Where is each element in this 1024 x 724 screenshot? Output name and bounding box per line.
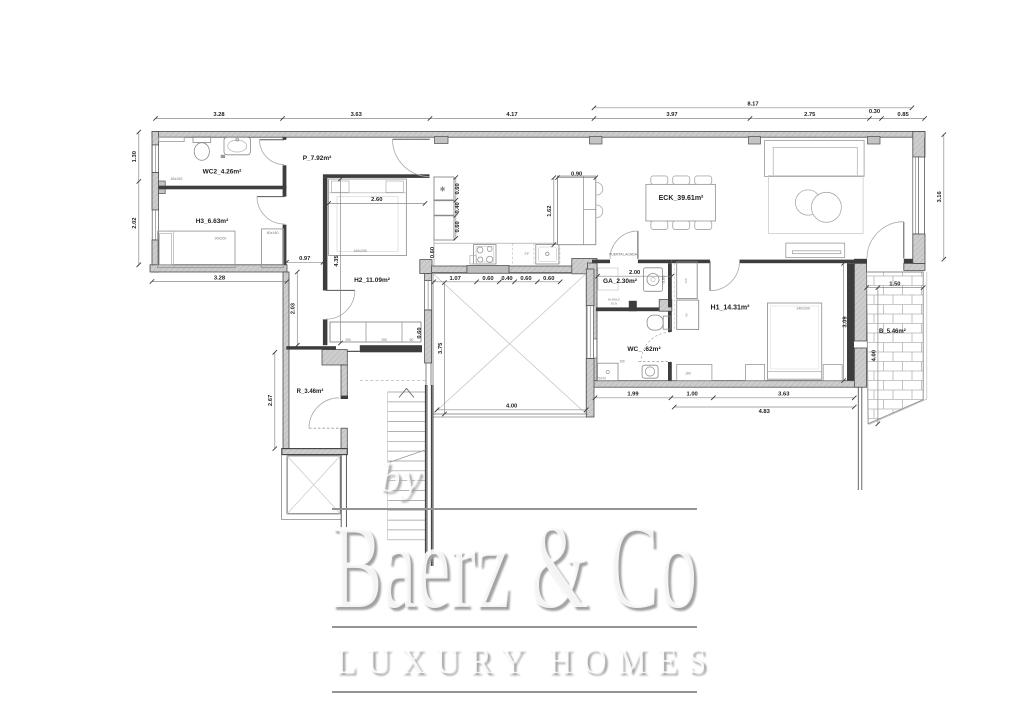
svg-text:R_3.46m²: R_3.46m²: [297, 388, 324, 395]
svg-text:65x150: 65x150: [171, 177, 183, 181]
svg-text:80: 80: [685, 313, 689, 317]
svg-text:90x200: 90x200: [215, 237, 227, 241]
svg-text:H1_14.31m²: H1_14.31m²: [711, 305, 751, 312]
svg-text:WC2_4.26m²: WC2_4.26m²: [203, 169, 242, 176]
svg-text:4.35: 4.35: [334, 255, 340, 267]
svg-text:0.60: 0.60: [417, 327, 423, 338]
svg-text:3.28: 3.28: [213, 112, 225, 118]
svg-text:0.60: 0.60: [455, 183, 461, 194]
svg-text:H3_6.63m²: H3_6.63m²: [196, 218, 229, 225]
svg-text:GA_2.30m²: GA_2.30m²: [603, 278, 638, 285]
svg-text:P_7.92m²: P_7.92m²: [303, 155, 332, 162]
svg-text:1.50: 1.50: [889, 281, 900, 287]
svg-text:0.60: 0.60: [520, 276, 531, 282]
svg-text:0.40: 0.40: [455, 202, 461, 213]
svg-text:3.28: 3.28: [214, 275, 226, 281]
svg-text:140x200: 140x200: [353, 249, 367, 253]
svg-text:1.99: 1.99: [627, 392, 639, 398]
svg-text:0.30: 0.30: [869, 109, 880, 115]
svg-text:2.00: 2.00: [629, 270, 640, 276]
svg-text:70x70: 70x70: [597, 376, 606, 380]
svg-text:2.67: 2.67: [268, 395, 274, 406]
svg-text:3.16: 3.16: [937, 190, 943, 202]
svg-text:PUERTA LACADA: PUERTA LACADA: [609, 253, 637, 257]
svg-text:1.30: 1.30: [132, 151, 138, 162]
svg-text:3.63: 3.63: [778, 392, 790, 398]
svg-text:1.00: 1.00: [687, 392, 698, 398]
svg-text:0.60: 0.60: [543, 276, 554, 282]
svg-text:1.62: 1.62: [547, 206, 553, 217]
svg-text:H2_11.09m²: H2_11.09m²: [354, 277, 391, 284]
svg-text:8.17: 8.17: [747, 102, 758, 108]
svg-text:0.60: 0.60: [430, 247, 436, 258]
svg-text:0.97: 0.97: [299, 256, 310, 262]
svg-text:3.75: 3.75: [438, 342, 444, 354]
svg-text:50: 50: [410, 338, 414, 342]
svg-text:0.60: 0.60: [482, 276, 493, 282]
svg-text:4.00: 4.00: [871, 350, 877, 361]
svg-text:0.90: 0.90: [571, 171, 582, 177]
svg-text:60x160: 60x160: [267, 231, 279, 235]
svg-text:4.00: 4.00: [506, 404, 517, 410]
svg-text:1.07: 1.07: [450, 276, 461, 282]
svg-text:B_5.46m²: B_5.46m²: [879, 328, 906, 335]
svg-text:0.60: 0.60: [455, 221, 461, 232]
svg-text:0.40: 0.40: [501, 276, 512, 282]
svg-text:2.03: 2.03: [291, 302, 297, 314]
svg-text:ECK_39.61m²: ECK_39.61m²: [659, 195, 704, 202]
svg-text:0.60: 0.60: [661, 275, 666, 284]
svg-text:190: 190: [381, 338, 387, 342]
svg-text:FF: FF: [525, 251, 530, 256]
svg-text:4.17: 4.17: [506, 112, 517, 118]
svg-text:190: 190: [619, 360, 625, 364]
svg-text:0.85: 0.85: [897, 112, 909, 118]
svg-text:2.75: 2.75: [804, 112, 816, 118]
svg-text:WC_ .62m²: WC_ .62m²: [627, 346, 661, 353]
svg-text:3.09: 3.09: [843, 316, 849, 328]
svg-text:✱: ✱: [440, 186, 446, 194]
svg-text:3.97: 3.97: [666, 112, 677, 118]
svg-text:2.60: 2.60: [371, 197, 382, 203]
svg-text:160: 160: [684, 278, 688, 283]
svg-text:3.63: 3.63: [351, 112, 363, 118]
svg-text:140x200: 140x200: [796, 307, 810, 311]
svg-text:BCN: BCN: [611, 302, 617, 306]
svg-text:2.02: 2.02: [132, 217, 138, 228]
svg-text:190: 190: [345, 338, 351, 342]
svg-text:160: 160: [685, 372, 691, 376]
svg-text:4.83: 4.83: [759, 409, 771, 415]
